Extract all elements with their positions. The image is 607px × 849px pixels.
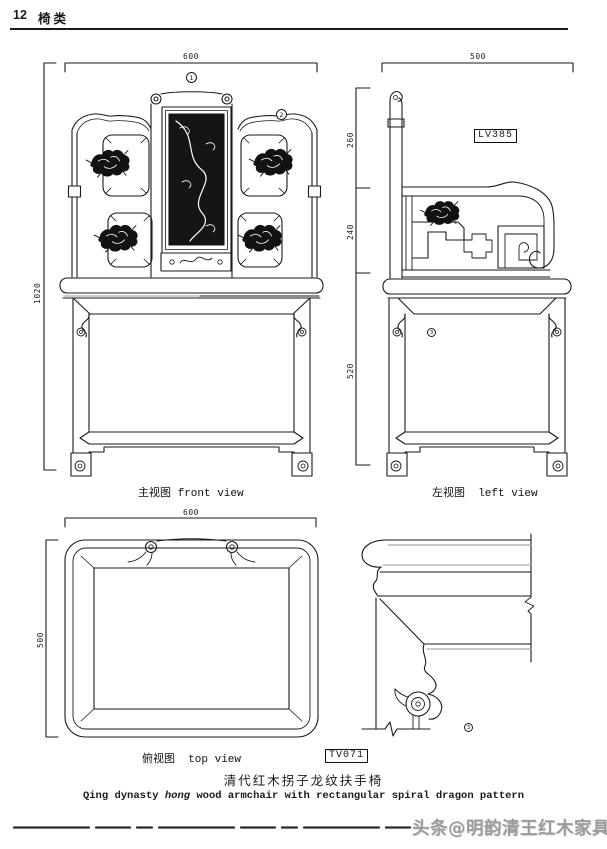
drawing-code-tv: TV071 (325, 749, 368, 763)
left-dim-width: 500 (470, 52, 486, 61)
drawing-code-lv: LV385 (474, 129, 517, 143)
top-crest-rail (128, 539, 255, 565)
front-left-wing (69, 114, 153, 277)
front-view-drawing (30, 45, 350, 505)
part-marker-3: 3 (427, 328, 436, 337)
top-dim-depth: 500 (36, 632, 45, 648)
book-page: 12 椅类 (0, 0, 607, 849)
left-view-drawing (340, 45, 585, 505)
left-dim-lower: 520 (346, 363, 355, 379)
top-seat-frame (65, 540, 318, 737)
left-view-caption: 左视图 left view (432, 484, 538, 500)
detail-drawing (350, 525, 555, 755)
top-dimension-lines (46, 518, 316, 737)
watermark-rule (0, 820, 420, 835)
detail-marker: 3 (464, 723, 473, 732)
english-title-prefix: Qing dynasty (83, 790, 165, 802)
front-dim-height: 1020 (33, 283, 42, 304)
front-crest-and-panel (151, 92, 232, 277)
top-view-caption: 俯视图 top view (142, 750, 241, 766)
watermark-text: 头条@明韵清王红木家具 (412, 815, 607, 840)
front-view-caption: 主视图 front view (138, 484, 244, 500)
english-title: Qing dynasty hong wood armchair with rec… (0, 790, 607, 802)
left-back-post (388, 92, 404, 278)
part-marker-2: 2 (276, 109, 287, 120)
detail-spandrel-scroll (362, 644, 442, 736)
chapter-category: 椅类 (38, 8, 69, 27)
english-title-suffix: wood armchair with rectangular spiral dr… (190, 790, 524, 802)
top-dim-width: 600 (183, 508, 199, 517)
left-seat-and-legs (383, 279, 571, 476)
front-seat-and-legs (60, 278, 323, 476)
detail-seat-edge-section (362, 534, 534, 729)
part-marker-1: 1 (186, 72, 197, 83)
left-armrest-and-spiral-rail (402, 182, 554, 277)
left-dim-middle: 240 (346, 224, 355, 240)
english-title-italic: hong (165, 790, 190, 802)
top-view-drawing (30, 505, 340, 755)
left-dim-upper: 260 (346, 132, 355, 148)
chinese-title: 清代红木拐子龙纹扶手椅 (0, 770, 607, 789)
front-right-wing (238, 114, 321, 277)
header-rule (10, 28, 568, 30)
front-dim-width: 600 (183, 52, 199, 61)
page-number: 12 (13, 8, 27, 22)
